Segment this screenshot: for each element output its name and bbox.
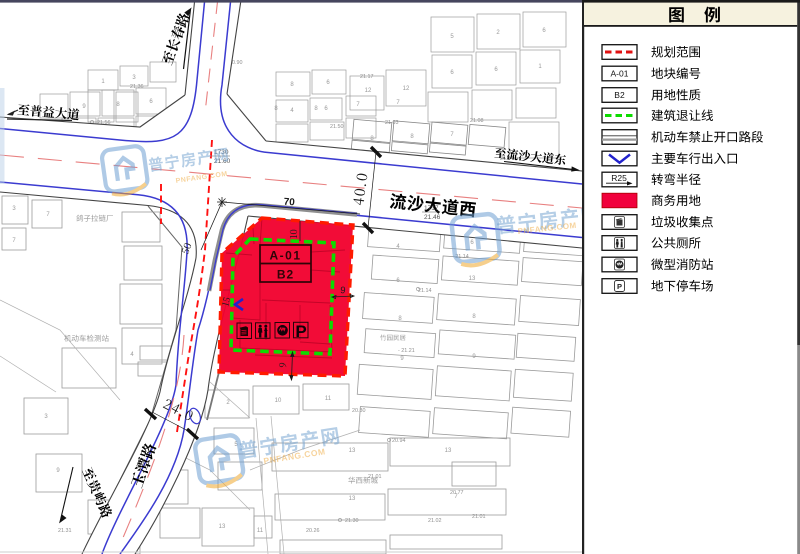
svg-text:B2: B2 xyxy=(614,90,625,100)
svg-text:11: 11 xyxy=(325,396,332,402)
svg-text:21.31: 21.31 xyxy=(58,528,72,534)
svg-text:21.36: 21.36 xyxy=(130,84,144,90)
svg-text:21.17: 21.17 xyxy=(360,74,374,80)
svg-text:20.94: 20.94 xyxy=(392,438,406,444)
svg-text:21.02: 21.02 xyxy=(428,518,442,524)
svg-text:21.08: 21.08 xyxy=(470,118,484,124)
svg-text:A-01: A-01 xyxy=(611,69,629,79)
svg-text:21.50: 21.50 xyxy=(330,124,344,130)
svg-text:21.01: 21.01 xyxy=(472,514,486,520)
svg-text:- 21.21: - 21.21 xyxy=(398,348,415,354)
svg-text:21.01: 21.01 xyxy=(368,474,382,480)
svg-text:13: 13 xyxy=(349,496,356,502)
svg-text:12: 12 xyxy=(365,88,372,94)
svg-text:R25: R25 xyxy=(611,173,627,183)
svg-text:B2: B2 xyxy=(277,268,294,282)
svg-text:21.03: 21.03 xyxy=(385,120,399,126)
svg-text:20.26: 20.26 xyxy=(306,528,320,534)
svg-text:9: 9 xyxy=(340,285,346,296)
svg-text:A-01: A-01 xyxy=(269,249,301,263)
svg-text:P: P xyxy=(617,282,622,291)
svg-text:70: 70 xyxy=(283,197,295,209)
svg-text:21.46: 21.46 xyxy=(424,214,441,221)
svg-text:13: 13 xyxy=(469,276,476,282)
svg-text:13: 13 xyxy=(349,448,356,454)
svg-text:10: 10 xyxy=(275,398,282,404)
svg-text:13: 13 xyxy=(445,448,452,454)
svg-text:20.30: 20.30 xyxy=(352,408,366,414)
svg-text:13: 13 xyxy=(219,524,226,530)
svg-text:1717: 1717 xyxy=(424,205,439,212)
svg-text:P: P xyxy=(295,322,306,341)
svg-text:21.30: 21.30 xyxy=(345,518,359,524)
svg-text:11: 11 xyxy=(257,528,264,534)
svg-text:21.14: 21.14 xyxy=(418,288,432,294)
svg-text:12: 12 xyxy=(403,86,410,92)
